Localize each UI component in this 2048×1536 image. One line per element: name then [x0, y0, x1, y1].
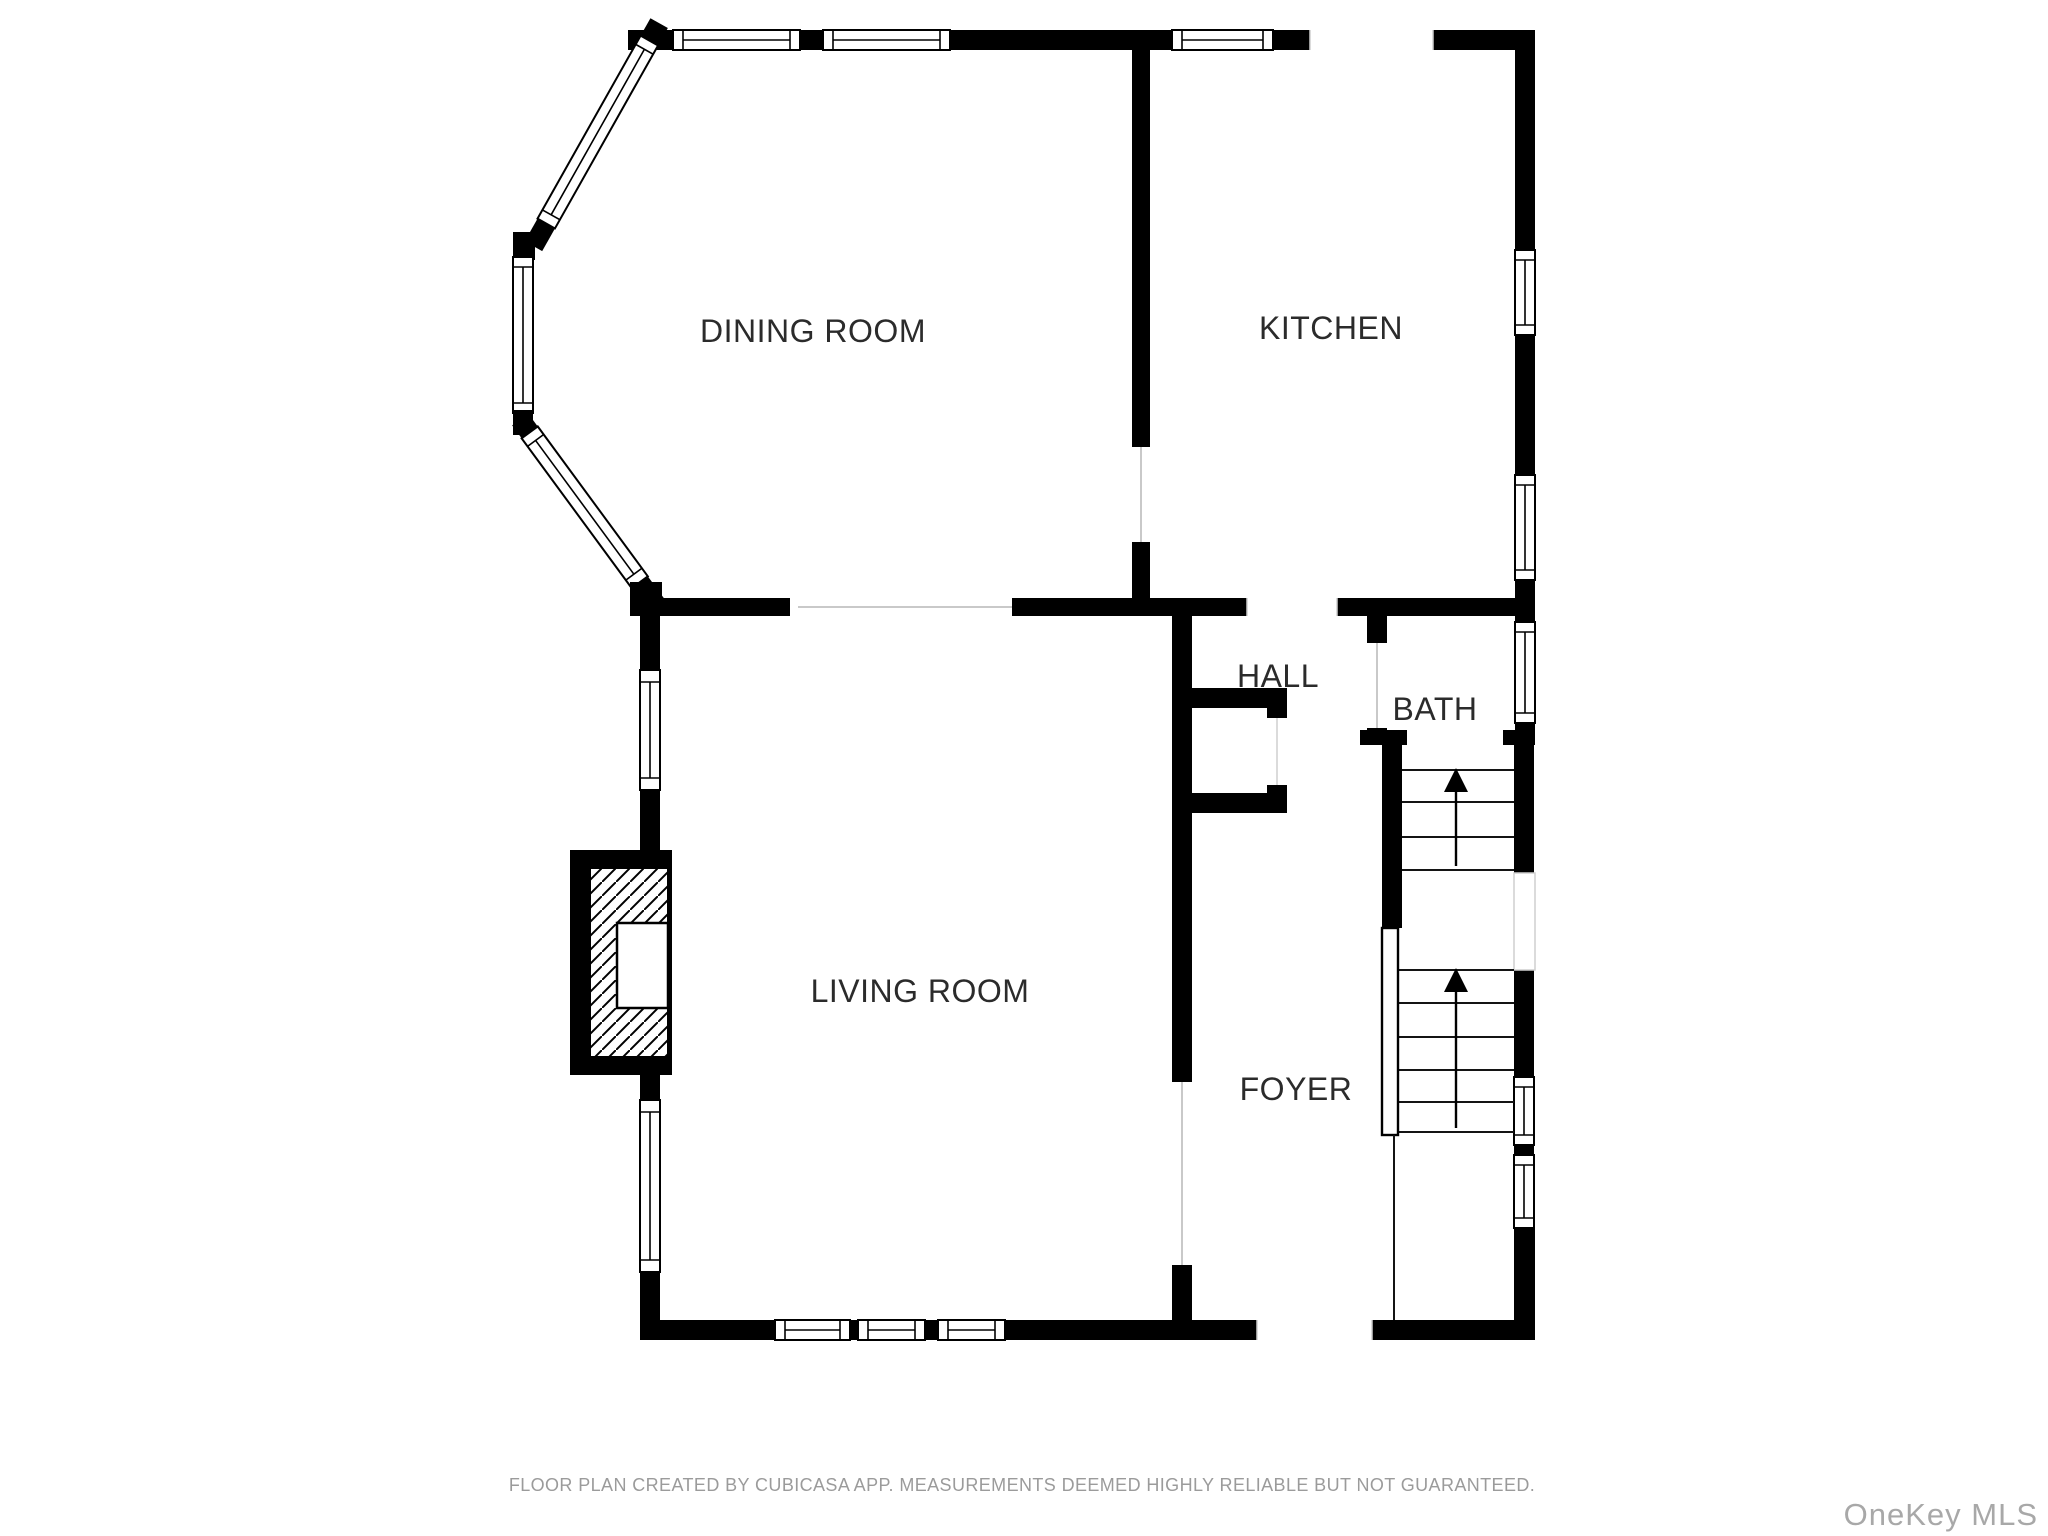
window: [1515, 250, 1535, 335]
window: [1514, 1077, 1534, 1145]
windows: [640, 30, 1535, 1340]
bay-window: [512, 18, 668, 616]
footer-disclaimer: FLOOR PLAN CREATED BY CUBICASA APP. MEAS…: [509, 1475, 1535, 1495]
window: [858, 1320, 925, 1340]
window: [673, 30, 800, 50]
door-openings: [798, 30, 1535, 1340]
room-label-dining-room: DINING ROOM: [700, 313, 926, 349]
room-label-foyer: FOYER: [1240, 1071, 1353, 1107]
window: [1172, 30, 1273, 50]
room-label-kitchen: KITCHEN: [1259, 310, 1403, 346]
window: [1515, 622, 1535, 723]
room-label-hall: HALL: [1237, 658, 1319, 694]
room-label-bath: BATH: [1393, 691, 1478, 727]
window: [640, 1100, 660, 1272]
window: [1514, 1155, 1534, 1228]
stair-railing: [1382, 928, 1398, 1135]
watermark: OneKey MLS: [1844, 1497, 2038, 1532]
walls: [628, 30, 1535, 1340]
fireplace: [570, 850, 672, 1075]
window: [938, 1320, 1005, 1340]
window: [775, 1320, 850, 1340]
window: [640, 670, 660, 790]
room-labels: DINING ROOM KITCHEN HALL BATH LIVING ROO…: [700, 310, 1477, 1107]
floor-plan-page: DINING ROOM KITCHEN HALL BATH LIVING ROO…: [0, 0, 2048, 1536]
window: [823, 30, 950, 50]
stairs-up-arrow-icon: [1444, 768, 1468, 866]
floor-plan-canvas: DINING ROOM KITCHEN HALL BATH LIVING ROO…: [0, 0, 2048, 1536]
window: [1515, 475, 1535, 580]
room-label-living-room: LIVING ROOM: [811, 973, 1030, 1009]
hall-closet: [1192, 688, 1287, 813]
firebox: [617, 923, 668, 1008]
stairs-up-arrow-icon: [1444, 968, 1468, 1128]
